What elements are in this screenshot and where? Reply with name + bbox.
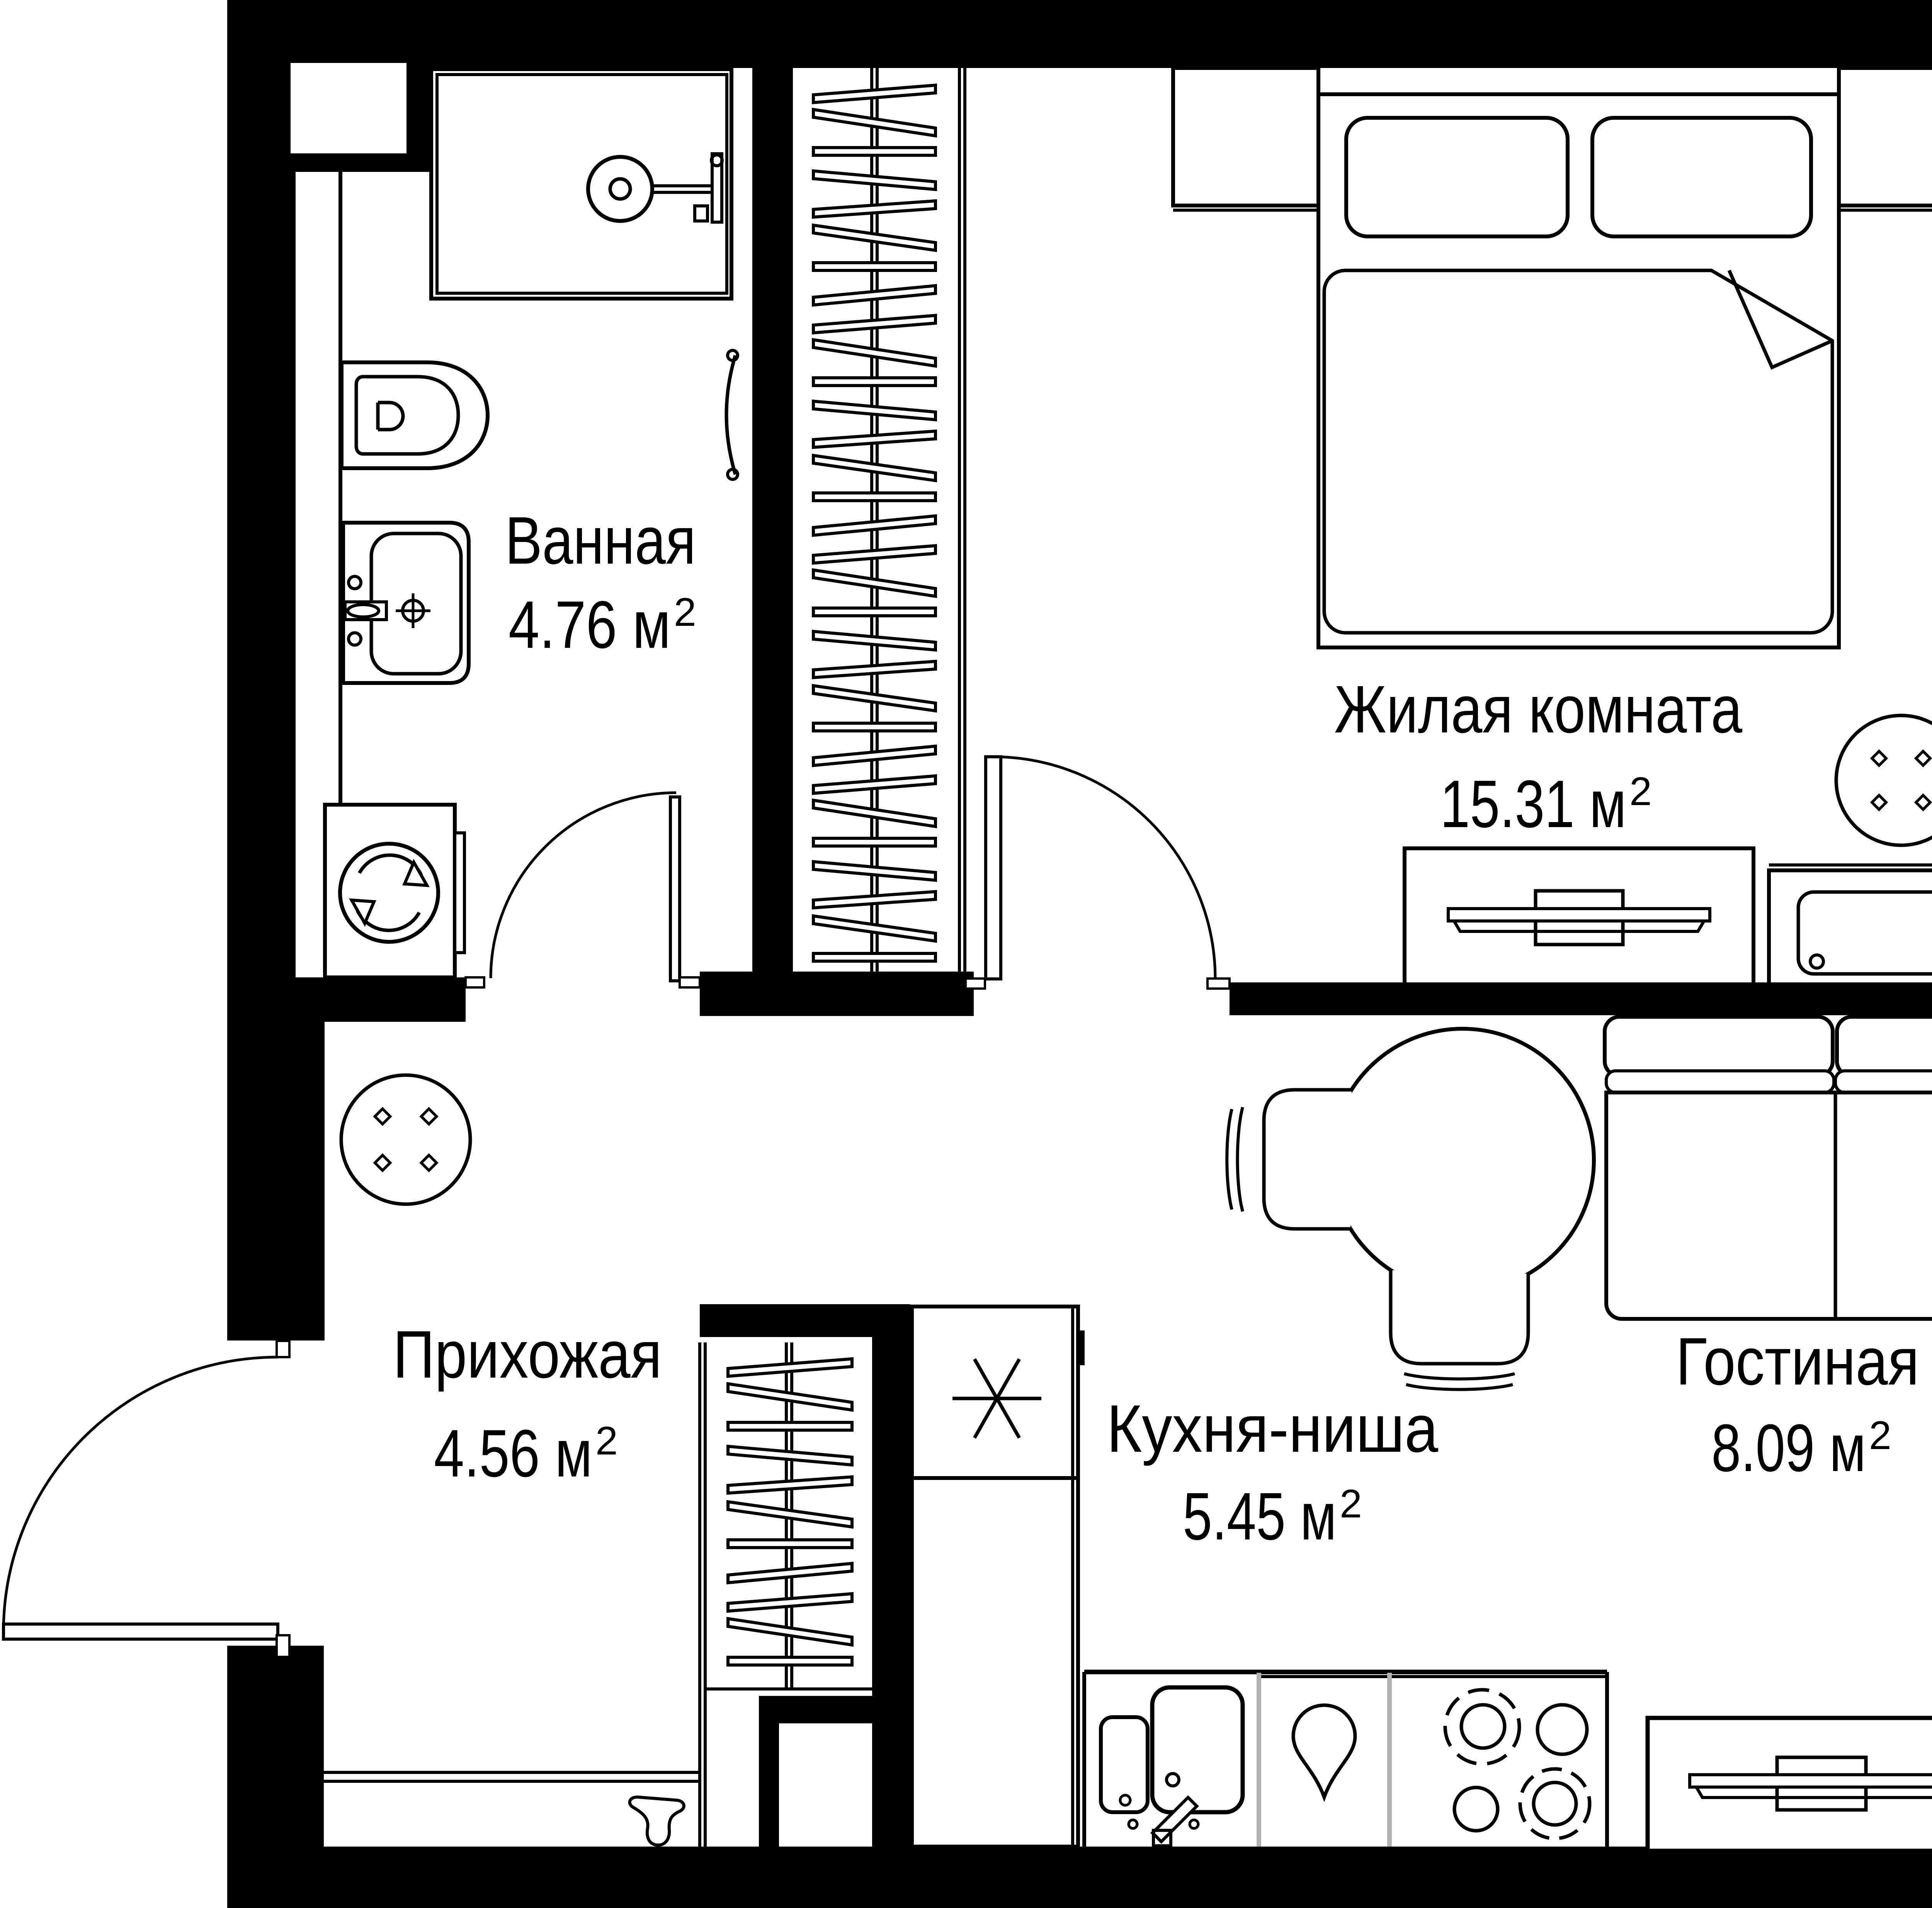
svg-text:5.45 м: 5.45 м <box>1183 1478 1337 1554</box>
svg-text:Жилая комната: Жилая комната <box>1334 671 1742 747</box>
svg-text:2: 2 <box>674 590 696 635</box>
svg-text:4.56 м: 4.56 м <box>434 1415 592 1491</box>
svg-text:8.09 м: 8.09 м <box>1711 1410 1866 1485</box>
svg-text:4.76 м: 4.76 м <box>509 587 671 662</box>
svg-text:2: 2 <box>595 1419 618 1463</box>
svg-text:Кухня-ниша: Кухня-ниша <box>1107 1391 1438 1466</box>
svg-text:Прихожая: Прихожая <box>393 1317 662 1392</box>
svg-text:Ванная: Ванная <box>505 503 696 578</box>
svg-text:2: 2 <box>1340 1482 1362 1526</box>
svg-text:2: 2 <box>1869 1413 1891 1458</box>
svg-text:Гостиная: Гостиная <box>1676 1324 1919 1399</box>
svg-text:2: 2 <box>1629 769 1652 814</box>
svg-text:15.31 м: 15.31 м <box>1440 766 1626 841</box>
